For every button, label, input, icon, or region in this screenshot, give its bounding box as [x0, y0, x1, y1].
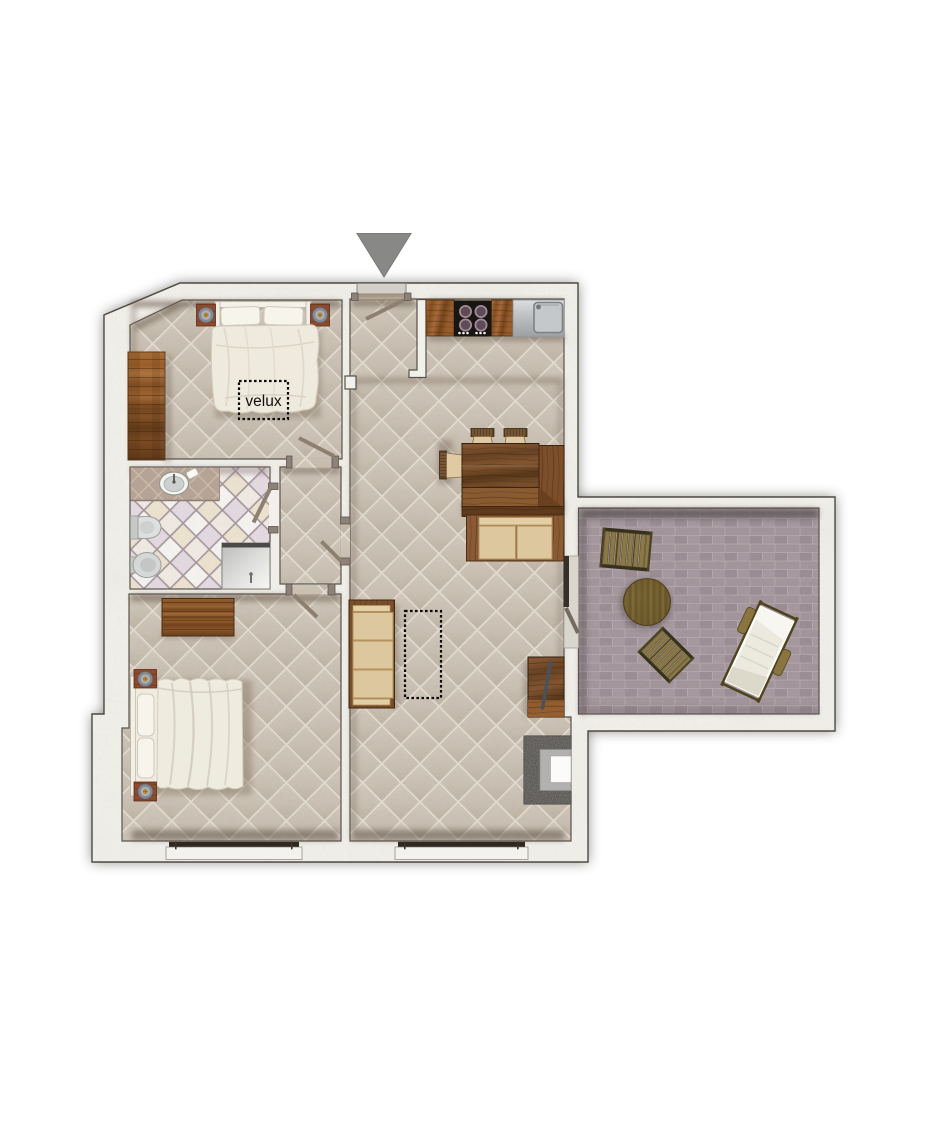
svg-text:velux: velux — [245, 393, 281, 410]
